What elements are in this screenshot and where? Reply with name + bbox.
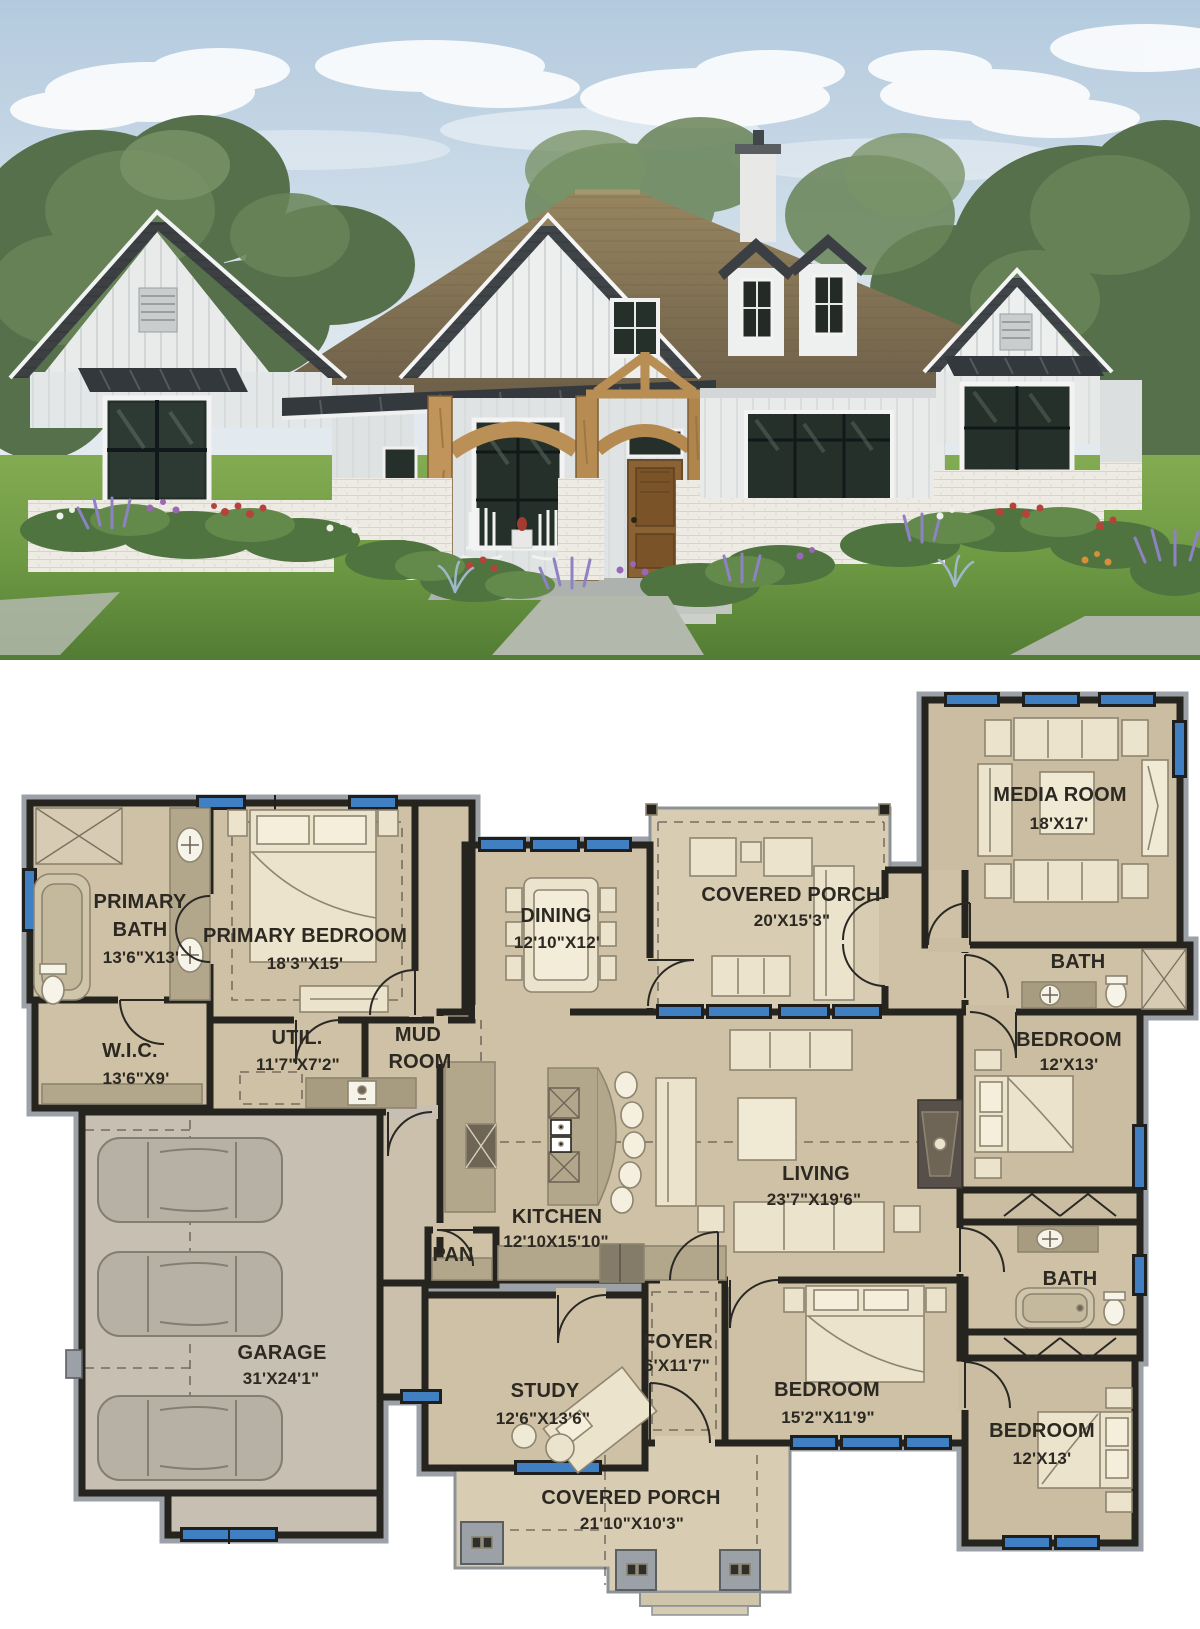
label-media-dims: 18'X17': [1030, 814, 1089, 833]
fireplace-tv: [918, 1100, 962, 1188]
gable-vent: [139, 288, 177, 332]
label-bath-lower: BATH: [1043, 1268, 1098, 1290]
label-study-dims: 12'6"X13'6": [496, 1409, 590, 1428]
label-primary-bedroom: PRIMARY BEDROOM: [203, 925, 407, 947]
label-kitchen-dims: 12'10X15'10": [503, 1232, 609, 1251]
label-living: LIVING: [782, 1163, 850, 1185]
media-screen: [1142, 760, 1168, 856]
house-plan-listing: PRIMARY BATH 13'6"X13' PRIMARY BEDROOM 1…: [0, 0, 1200, 1629]
door-handle: [631, 517, 637, 523]
label-bedroom-middle-dims: 15'2"X11'9": [781, 1408, 875, 1427]
label-bedroom-lower-dims: 12'X13': [1013, 1449, 1072, 1468]
metal-awning-left: [78, 368, 248, 392]
label-front-porch-dims: 21'10"X10'3": [580, 1514, 684, 1533]
label-garage: GARAGE: [238, 1342, 327, 1364]
label-mud-2: ROOM: [388, 1051, 451, 1073]
label-living-dims: 23'7"X19'6": [767, 1190, 861, 1209]
label-primary-bath-2: BATH: [113, 919, 168, 941]
label-foyer-dims: 6'X11'7": [644, 1356, 710, 1375]
label-bath-upper: BATH: [1051, 951, 1106, 973]
rear-porch-post: [646, 804, 657, 815]
label-bedroom-right: BEDROOM: [1016, 1029, 1122, 1051]
label-media: MEDIA ROOM: [993, 784, 1126, 806]
chimney: [735, 130, 781, 242]
bedroom-middle-bed: [784, 1286, 946, 1382]
floor-plan: PRIMARY BATH 13'6"X13' PRIMARY BEDROOM 1…: [22, 692, 1190, 1615]
util-appliances: [306, 1078, 416, 1108]
label-front-porch: COVERED PORCH: [541, 1487, 720, 1509]
label-foyer: FOYER: [643, 1331, 713, 1353]
label-wic-dims: 13'6"X9': [103, 1069, 170, 1088]
label-pan: PAN: [432, 1244, 473, 1266]
exterior-photo: [0, 0, 1200, 660]
label-dining-dims: 12'10"X12': [514, 933, 600, 952]
label-wic: W.I.C.: [102, 1040, 158, 1062]
label-garage-dims: 31'X24'1": [243, 1369, 320, 1388]
label-kitchen: KITCHEN: [512, 1206, 602, 1228]
porch-table: [512, 530, 532, 548]
label-util-dims: 11'7"X7'2": [256, 1055, 340, 1074]
gable-vent-right: [1000, 314, 1032, 350]
label-primary-bath: PRIMARY: [94, 891, 187, 913]
label-primary-bath-dims: 13'6"X13': [103, 948, 180, 967]
triple-window: [746, 412, 892, 512]
label-dining: DINING: [520, 905, 591, 927]
label-bedroom-lower: BEDROOM: [989, 1420, 1095, 1442]
label-rear-porch: COVERED PORCH: [701, 884, 880, 906]
label-mud: MUD: [395, 1024, 441, 1046]
label-bedroom-middle: BEDROOM: [774, 1379, 880, 1401]
label-rear-porch-dims: 20'X15'3": [754, 911, 831, 930]
garage-pilaster: [66, 1350, 82, 1378]
label-bedroom-right-dims: 12'X13': [1040, 1055, 1099, 1074]
label-study: STUDY: [511, 1380, 580, 1402]
garage-cars: [98, 1138, 282, 1480]
label-primary-bedroom-dims: 18'3"X15': [267, 954, 344, 973]
label-util: UTIL.: [272, 1027, 323, 1049]
rear-porch-post: [879, 804, 890, 815]
